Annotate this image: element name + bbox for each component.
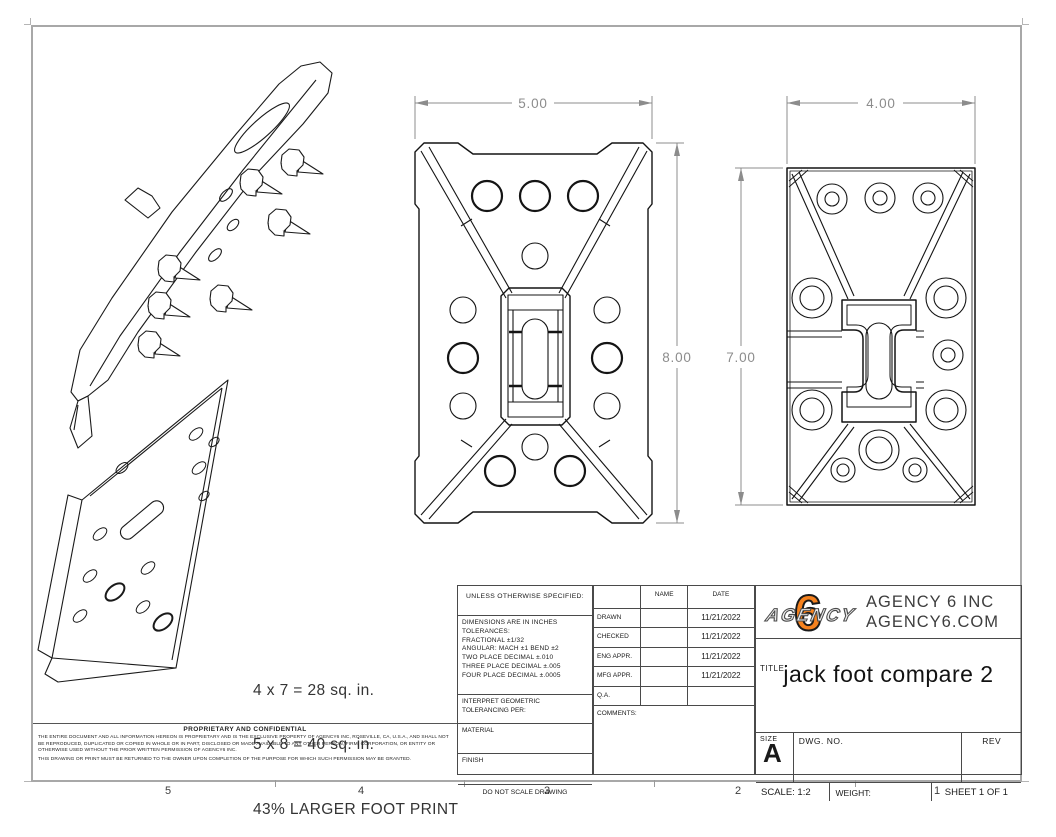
proprietary-para-2: THIS DRAWING OR PRINT MUST BE RETURNED T… xyxy=(33,755,457,764)
tolerance-lines: DIMENSIONS ARE IN INCHES TOLERANCES: FRA… xyxy=(458,616,592,695)
annotation-line-1: 4 x 7 = 28 sq. in. xyxy=(253,682,458,700)
title-block: 6 AGENCY AGENCY 6 INC AGENCY6.COM TITLE:… xyxy=(755,585,1022,775)
proprietary-para-1: THE ENTIRE DOCUMENT AND ALL INFORMATION … xyxy=(33,733,457,755)
interpret-geometric-cell: INTERPRET GEOMETRIC TOLERANCING PER: xyxy=(458,695,592,724)
agency6-logo: 6 AGENCY xyxy=(756,588,860,636)
dim-front-height: 8.00 xyxy=(662,350,691,365)
do-not-scale-cell: DO NOT SCALE DRAWING xyxy=(458,785,592,804)
size-cell: SIZE A xyxy=(756,733,794,782)
size-row: SIZE A DWG. NO. REV xyxy=(756,733,1021,783)
table-row: ENG APPR. 11/21/2022 xyxy=(594,648,754,667)
rev-cell: REV xyxy=(962,733,1021,782)
logo-word: AGENCY xyxy=(763,605,857,625)
name-header: NAME xyxy=(641,586,687,608)
date-header: DATE xyxy=(688,586,754,608)
sheet-cell: SHEET 1 OF 1 xyxy=(932,783,1021,801)
weight-cell: WEIGHT: xyxy=(830,783,931,801)
finish-cell: FINISH xyxy=(458,754,592,785)
scale-row: SCALE: 1:2 WEIGHT: SHEET 1 OF 1 xyxy=(756,783,1021,801)
table-row: MFG APPR. 11/21/2022 xyxy=(594,667,754,687)
table-row: Q.A. xyxy=(594,687,754,706)
company-row: 6 AGENCY AGENCY 6 INC AGENCY6.COM xyxy=(756,586,1021,639)
dim-side-height: 7.00 xyxy=(726,350,755,365)
approval-header-row: NAME DATE xyxy=(594,586,754,609)
proprietary-title: PROPRIETARY AND CONFIDENTIAL xyxy=(33,726,457,733)
size-value: A xyxy=(756,743,793,763)
comments-cell: COMMENTS: xyxy=(594,706,754,717)
dim-side-width: 4.00 xyxy=(866,96,895,111)
engineering-drawing-sheet: { "sheet": { "zones": ["5", "4", "3", "2… xyxy=(0,0,1056,816)
company-name: AGENCY 6 INC AGENCY6.COM xyxy=(860,592,999,632)
dim-front-width: 5.00 xyxy=(518,96,547,111)
table-row: DRAWN 11/21/2022 xyxy=(594,609,754,628)
dwg-no-cell: DWG. NO. xyxy=(794,733,963,782)
front-view-5x8 xyxy=(415,143,652,523)
table-row: CHECKED 11/21/2022 xyxy=(594,628,754,648)
tolerance-block: UNLESS OTHERWISE SPECIFIED: DIMENSIONS A… xyxy=(457,585,593,775)
side-view-4x7 xyxy=(787,168,975,505)
scale-cell: SCALE: 1:2 xyxy=(756,783,830,801)
title-row: TITLE: jack foot compare 2 xyxy=(756,661,1021,733)
annotation-line-3: 43% LARGER FOOT PRINT xyxy=(253,801,458,819)
front-outline xyxy=(415,143,652,523)
approval-table: NAME DATE DRAWN 11/21/2022 CHECKED 11/21… xyxy=(593,585,755,775)
drawing-title: jack foot compare 2 xyxy=(756,661,1021,688)
material-cell: MATERIAL xyxy=(458,724,592,754)
tolerance-header: UNLESS OTHERWISE SPECIFIED: xyxy=(458,586,592,616)
isometric-view xyxy=(38,62,332,682)
title-label: TITLE: xyxy=(760,664,787,673)
proprietary-note: PROPRIETARY AND CONFIDENTIAL THE ENTIRE … xyxy=(33,723,457,780)
